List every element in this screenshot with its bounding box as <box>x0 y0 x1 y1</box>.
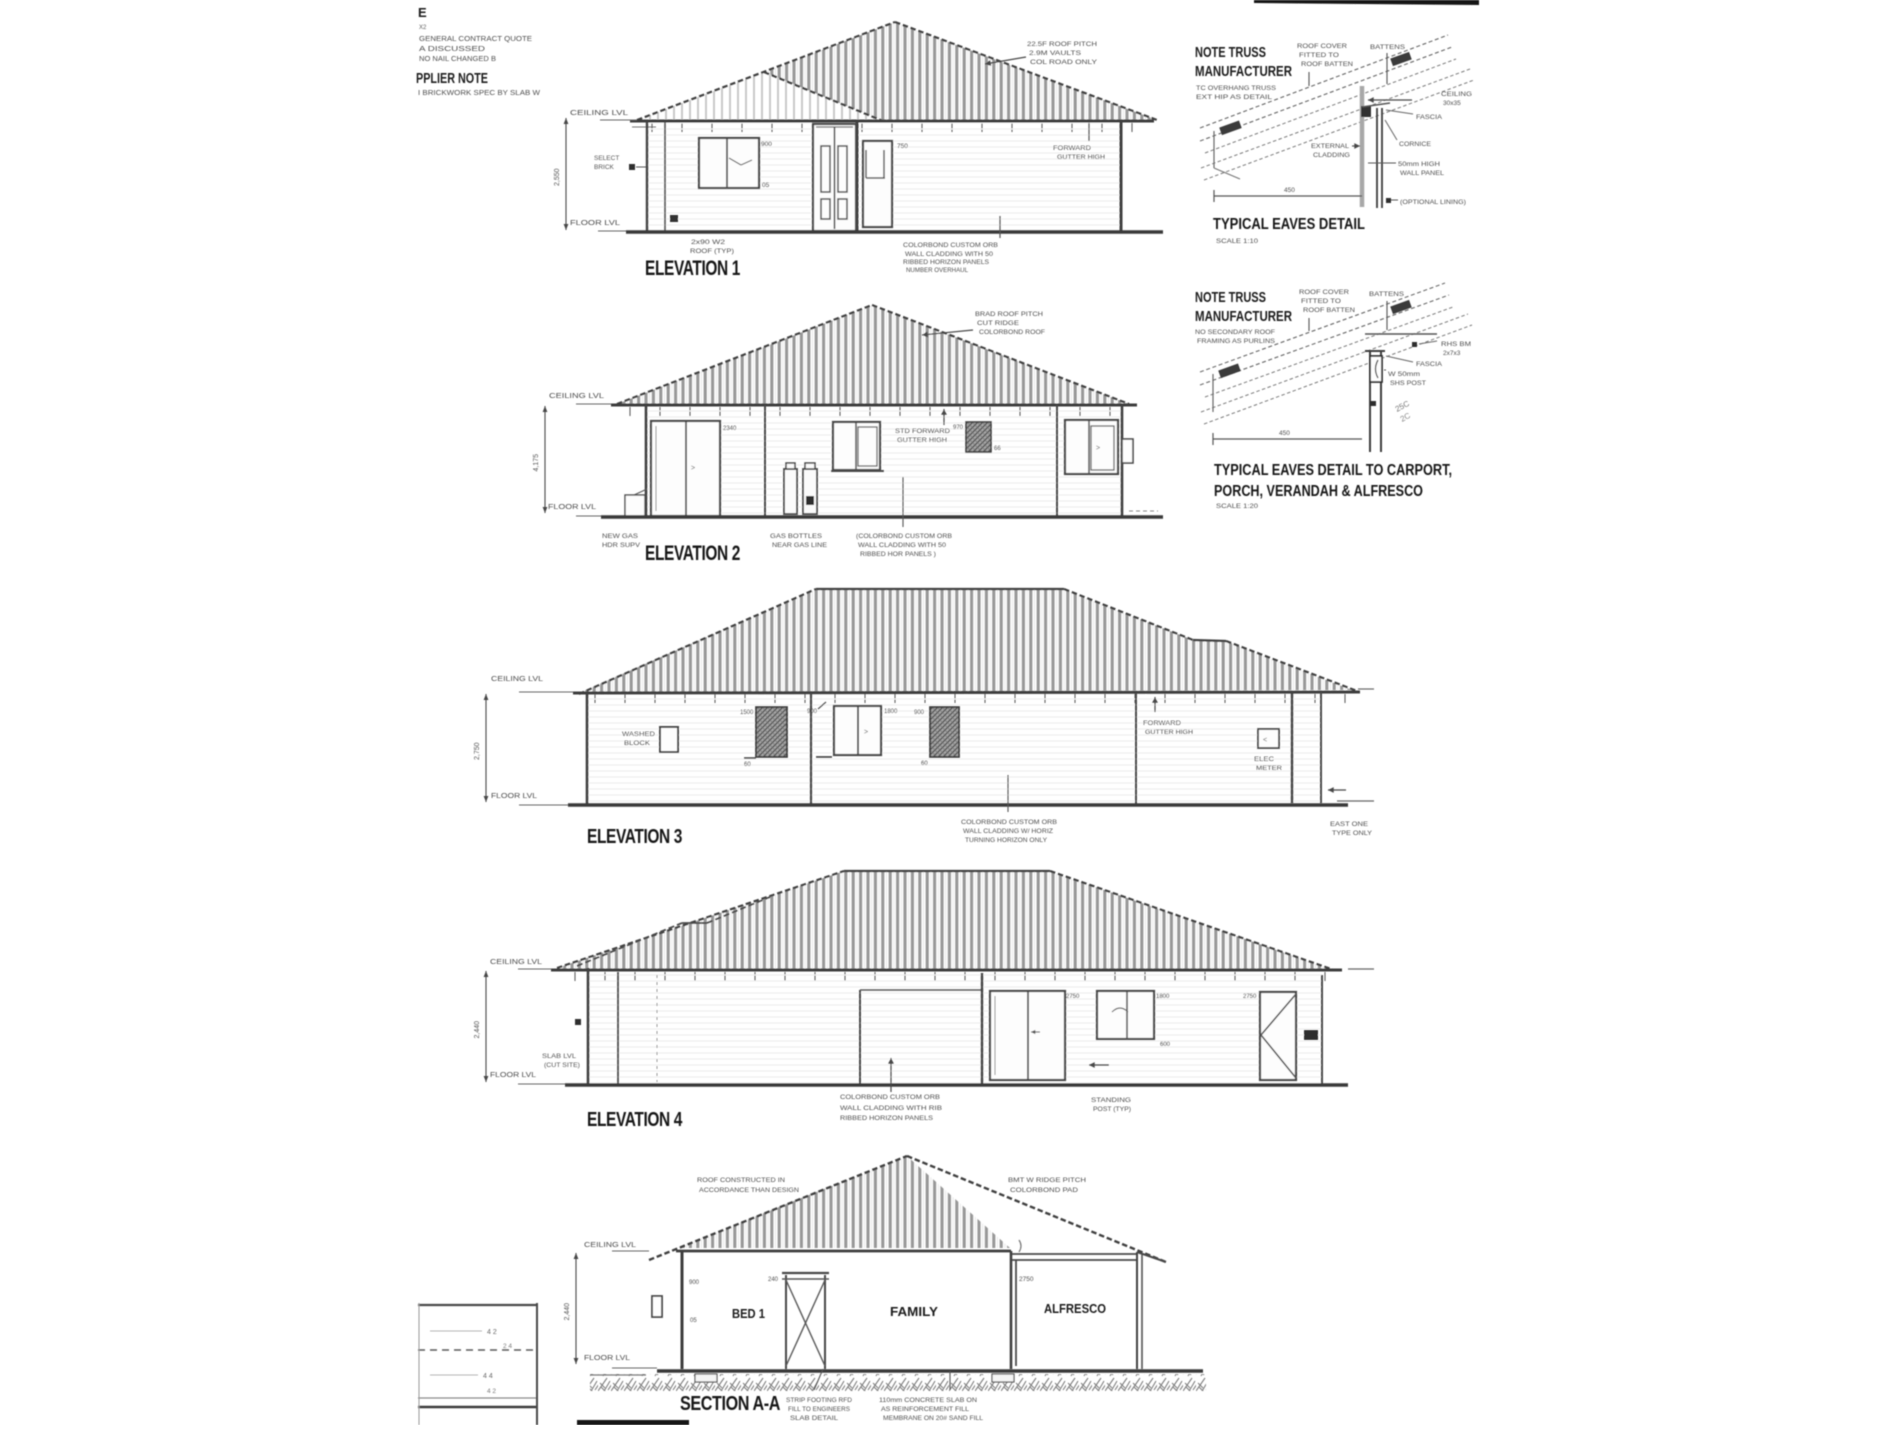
svg-text:BRAD ROOF PITCH: BRAD ROOF PITCH <box>975 311 1043 318</box>
svg-text:POST (TYP): POST (TYP) <box>1093 1106 1131 1113</box>
svg-text:HDR SUPV: HDR SUPV <box>602 542 641 549</box>
svg-text:NEW GAS: NEW GAS <box>602 533 639 540</box>
svg-text:I BRICKWORK SPEC BY SLAB W: I BRICKWORK SPEC BY SLAB W <box>418 90 540 97</box>
svg-text:4 2: 4 2 <box>487 1388 496 1395</box>
svg-text:W 50mm: W 50mm <box>1388 371 1420 378</box>
svg-text:STRIP FOOTING RFD: STRIP FOOTING RFD <box>786 1398 853 1404</box>
svg-text:900: 900 <box>689 1280 700 1286</box>
svg-text:SLAB DETAIL: SLAB DETAIL <box>790 1416 839 1422</box>
svg-text:MANUFACTURER: MANUFACTURER <box>1195 63 1292 80</box>
svg-text:450: 450 <box>1284 187 1295 194</box>
svg-text:ALFRESCO: ALFRESCO <box>1044 1301 1106 1316</box>
svg-text:GENERAL CONTRACT QUOTE: GENERAL CONTRACT QUOTE <box>419 36 532 43</box>
svg-text:ROOF (TYP): ROOF (TYP) <box>690 248 734 255</box>
svg-text:05: 05 <box>762 182 770 189</box>
svg-text:GUTTER HIGH: GUTTER HIGH <box>1145 729 1193 736</box>
svg-text:GAS BOTTLES: GAS BOTTLES <box>770 533 823 540</box>
svg-text:4 2: 4 2 <box>487 1329 497 1336</box>
svg-text:NO SECONDARY ROOF: NO SECONDARY ROOF <box>1195 329 1275 336</box>
svg-text:EXTERNAL: EXTERNAL <box>1311 143 1349 150</box>
svg-text:2750: 2750 <box>1243 994 1257 1000</box>
svg-text:MEMBRANE ON 20# SAND FILL: MEMBRANE ON 20# SAND FILL <box>883 1416 984 1422</box>
svg-text:BRICK: BRICK <box>594 164 615 171</box>
svg-text:TYPE ONLY: TYPE ONLY <box>1332 830 1373 837</box>
svg-text:1800: 1800 <box>884 709 898 715</box>
svg-text:FLOOR LVL: FLOOR LVL <box>584 1355 630 1362</box>
svg-text:COLORBOND CUSTOM ORB: COLORBOND CUSTOM ORB <box>840 1094 940 1101</box>
svg-text:STANDING: STANDING <box>1091 1097 1131 1104</box>
svg-text:>: > <box>691 465 695 472</box>
svg-text:WALL CLADDING WITH RIB: WALL CLADDING WITH RIB <box>840 1105 942 1112</box>
svg-text:CEILING LVL: CEILING LVL <box>490 959 542 966</box>
svg-text:TYPICAL EAVES DETAIL TO CARPOR: TYPICAL EAVES DETAIL TO CARPORT, <box>1214 462 1452 479</box>
svg-text:BED 1: BED 1 <box>732 1306 765 1321</box>
svg-text:SLAB LVL: SLAB LVL <box>542 1054 577 1060</box>
svg-text:FLOOR LVL: FLOOR LVL <box>570 220 620 227</box>
svg-text:WALL CLADDING WITH 50: WALL CLADDING WITH 50 <box>905 251 993 258</box>
svg-text:NOTE TRUSS: NOTE TRUSS <box>1195 289 1266 306</box>
svg-text:STD FORWARD: STD FORWARD <box>895 428 950 435</box>
svg-text:ROOF BATTEN: ROOF BATTEN <box>1303 307 1355 314</box>
svg-text:FORWARD: FORWARD <box>1053 145 1091 152</box>
svg-text:PPLIER NOTE: PPLIER NOTE <box>416 71 488 87</box>
svg-text:600: 600 <box>1160 1042 1171 1048</box>
svg-text:TC OVERHANG TRUSS: TC OVERHANG TRUSS <box>1196 85 1277 92</box>
svg-text:970: 970 <box>953 425 964 431</box>
svg-text:60: 60 <box>921 761 928 767</box>
svg-text:RIBBED HOR PANELS ): RIBBED HOR PANELS ) <box>860 551 936 558</box>
svg-text:FASCIA: FASCIA <box>1416 361 1443 368</box>
svg-text:CEILING LVL: CEILING LVL <box>570 110 628 117</box>
svg-text:(OPTIONAL LINING): (OPTIONAL LINING) <box>1400 199 1466 206</box>
svg-text:NOTE TRUSS: NOTE TRUSS <box>1195 44 1266 61</box>
svg-text:CUT RIDGE: CUT RIDGE <box>977 320 1020 327</box>
svg-text:FLOOR LVL: FLOOR LVL <box>490 1072 536 1079</box>
svg-text:900: 900 <box>914 710 925 716</box>
svg-text:A DISCUSSED: A DISCUSSED <box>419 46 485 53</box>
svg-text:RIBBED HORIZON PANELS: RIBBED HORIZON PANELS <box>840 1115 934 1122</box>
svg-text:ELEVATION 1: ELEVATION 1 <box>645 257 741 280</box>
svg-text:66: 66 <box>994 446 1001 452</box>
svg-text:2,750: 2,750 <box>474 742 481 760</box>
svg-text:900: 900 <box>761 141 772 148</box>
svg-text:METER: METER <box>1256 765 1282 772</box>
svg-text:FORWARD: FORWARD <box>1143 720 1181 727</box>
svg-text:WALL PANEL: WALL PANEL <box>1400 170 1444 177</box>
svg-text:SECTION A-A: SECTION A-A <box>680 1393 780 1415</box>
svg-text:450: 450 <box>1279 430 1290 437</box>
svg-text:EAST ONE: EAST ONE <box>1330 821 1369 828</box>
svg-text:ROOF COVER: ROOF COVER <box>1297 43 1347 50</box>
svg-text:750: 750 <box>897 143 908 150</box>
svg-text:05: 05 <box>690 1318 697 1324</box>
svg-text:BLOCK: BLOCK <box>624 740 651 747</box>
svg-text:FASCIA: FASCIA <box>1416 114 1443 121</box>
svg-text:BATTENS: BATTENS <box>1369 291 1405 298</box>
svg-text:(COLORBOND CUSTOM ORB: (COLORBOND CUSTOM ORB <box>856 533 952 540</box>
svg-text:110mm CONCRETE SLAB ON: 110mm CONCRETE SLAB ON <box>879 1398 977 1404</box>
svg-text:PORCH, VERANDAH & ALFRESCO: PORCH, VERANDAH & ALFRESCO <box>1214 483 1423 500</box>
svg-text:WASHED: WASHED <box>622 731 655 738</box>
svg-text:FLOOR LVL: FLOOR LVL <box>548 504 596 511</box>
svg-text:BMT W RIDGE PITCH: BMT W RIDGE PITCH <box>1008 1177 1086 1184</box>
svg-text:2x7x3: 2x7x3 <box>1443 350 1461 357</box>
svg-text:2750: 2750 <box>1019 1276 1034 1283</box>
svg-text:CEILING: CEILING <box>1441 91 1472 98</box>
svg-text:ROOF COVER: ROOF COVER <box>1299 289 1349 296</box>
svg-text:NUMBER OVERHAUL: NUMBER OVERHAUL <box>906 267 968 274</box>
svg-text:CLADDING: CLADDING <box>1313 152 1350 159</box>
svg-text:FAMILY: FAMILY <box>890 1304 938 1319</box>
svg-text:CORNICE: CORNICE <box>1399 141 1432 148</box>
svg-text:AS REINFORCEMENT FILL: AS REINFORCEMENT FILL <box>881 1407 970 1413</box>
svg-text:240: 240 <box>768 1277 779 1283</box>
svg-text:FITTED TO: FITTED TO <box>1301 298 1341 305</box>
svg-text:WALL CLADDING WITH 50: WALL CLADDING WITH 50 <box>858 542 946 549</box>
svg-text:TURNING HORIZON ONLY: TURNING HORIZON ONLY <box>965 837 1048 844</box>
svg-text:ELEVATION 4: ELEVATION 4 <box>587 1109 683 1131</box>
svg-text:MANUFACTURER: MANUFACTURER <box>1195 308 1292 325</box>
svg-text:FRAMING AS PURLINS: FRAMING AS PURLINS <box>1197 338 1276 345</box>
svg-text:ROOF BATTEN: ROOF BATTEN <box>1301 61 1353 68</box>
svg-text:COLORBOND PAD: COLORBOND PAD <box>1010 1187 1078 1194</box>
svg-text:900: 900 <box>807 709 818 715</box>
svg-text:CEILING LVL: CEILING LVL <box>549 393 604 400</box>
svg-text:4,175: 4,175 <box>533 454 540 472</box>
svg-text:X2: X2 <box>419 25 427 31</box>
svg-text:SCALE 1:20: SCALE 1:20 <box>1216 503 1258 510</box>
svg-text:EXT HIP AS DETAIL: EXT HIP AS DETAIL <box>1196 94 1272 101</box>
svg-text:>: > <box>1096 445 1100 452</box>
svg-text:SELECT: SELECT <box>594 155 619 162</box>
svg-text:FITTED TO: FITTED TO <box>1299 52 1339 59</box>
svg-text:WALL CLADDING W/ HORIZ: WALL CLADDING W/ HORIZ <box>963 828 1053 835</box>
svg-text:2,550: 2,550 <box>554 168 561 186</box>
svg-text:E: E <box>418 5 427 20</box>
svg-text:2x90 W2: 2x90 W2 <box>691 239 726 246</box>
svg-text:COLORBOND ROOF: COLORBOND ROOF <box>979 329 1045 336</box>
svg-text:50mm HIGH: 50mm HIGH <box>1398 161 1440 168</box>
svg-text:RHS BM: RHS BM <box>1441 341 1471 348</box>
svg-text:30x35: 30x35 <box>1443 100 1461 107</box>
svg-text:COLORBOND CUSTOM ORB: COLORBOND CUSTOM ORB <box>961 819 1057 826</box>
svg-text:FILL TO ENGINEERS: FILL TO ENGINEERS <box>788 1407 850 1413</box>
svg-text:ELEVATION 3: ELEVATION 3 <box>587 826 682 848</box>
svg-text:SCALE 1:10: SCALE 1:10 <box>1216 238 1258 245</box>
svg-text:ACCORDANCE THAN DESIGN: ACCORDANCE THAN DESIGN <box>699 1187 799 1194</box>
svg-text:2.9M VAULTS: 2.9M VAULTS <box>1029 50 1082 57</box>
svg-text:RIBBED HORIZON PANELS: RIBBED HORIZON PANELS <box>903 259 990 266</box>
svg-text:<: < <box>1263 737 1267 744</box>
svg-text:ELEC: ELEC <box>1254 756 1274 763</box>
svg-text:2,440: 2,440 <box>564 1303 571 1321</box>
svg-text:NEAR GAS LINE: NEAR GAS LINE <box>772 542 828 549</box>
svg-text:1500: 1500 <box>740 710 754 716</box>
svg-text:CEILING LVL: CEILING LVL <box>584 1242 636 1249</box>
svg-text:NO NAIL CHANGED B: NO NAIL CHANGED B <box>419 56 496 63</box>
svg-text:SHS POST: SHS POST <box>1390 380 1426 387</box>
svg-text:2,440: 2,440 <box>474 1021 481 1039</box>
svg-text:1800: 1800 <box>1156 994 1170 1000</box>
svg-text:COL ROAD ONLY: COL ROAD ONLY <box>1030 59 1098 66</box>
svg-text:22.5F ROOF PITCH: 22.5F ROOF PITCH <box>1027 41 1097 48</box>
svg-text:(CUT SITE): (CUT SITE) <box>544 1063 580 1069</box>
svg-text:TYPICAL EAVES DETAIL: TYPICAL EAVES DETAIL <box>1213 216 1365 233</box>
svg-text:2 4: 2 4 <box>503 1343 512 1350</box>
svg-text:ROOF CONSTRUCTED IN: ROOF CONSTRUCTED IN <box>697 1177 785 1184</box>
svg-text:BATTENS: BATTENS <box>1370 44 1406 51</box>
svg-text:FLOOR LVL: FLOOR LVL <box>491 793 537 800</box>
svg-text:COLORBOND CUSTOM ORB: COLORBOND CUSTOM ORB <box>903 242 998 249</box>
svg-text:4 4: 4 4 <box>483 1373 493 1380</box>
svg-text:2340: 2340 <box>723 426 737 432</box>
svg-text:>: > <box>864 729 868 736</box>
svg-text:ELEVATION 2: ELEVATION 2 <box>645 542 740 565</box>
svg-text:2750: 2750 <box>1066 994 1080 1000</box>
svg-text:60: 60 <box>744 762 751 768</box>
svg-text:GUTTER HIGH: GUTTER HIGH <box>1057 154 1105 161</box>
svg-text:GUTTER HIGH: GUTTER HIGH <box>897 437 947 444</box>
svg-text:CEILING LVL: CEILING LVL <box>491 676 543 683</box>
